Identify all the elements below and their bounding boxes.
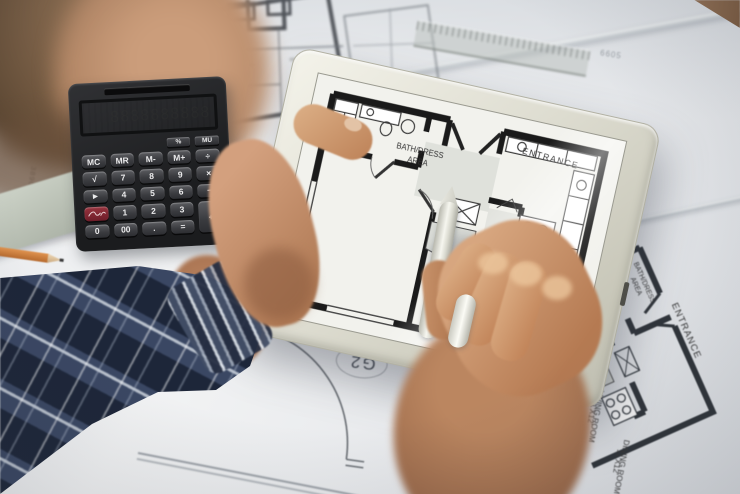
key-8[interactable]: 8 bbox=[139, 169, 163, 184]
left-hand-shadow bbox=[244, 248, 314, 320]
knuckle-highlight bbox=[510, 262, 542, 286]
key-5[interactable]: 5 bbox=[140, 186, 164, 201]
key-sqrt[interactable]: √ bbox=[82, 172, 106, 187]
calculator: 8888888888 % MU MC MR M- M+ ÷ √ 7 8 9 × … bbox=[68, 76, 235, 252]
key-percent[interactable]: % bbox=[166, 137, 190, 147]
knuckle-highlight bbox=[478, 252, 508, 274]
key-memory-plus[interactable]: M+ bbox=[167, 150, 191, 165]
pencil bbox=[0, 246, 50, 263]
key-memory-minus[interactable]: M- bbox=[139, 151, 163, 166]
calculator-display-segments: 8888888888 bbox=[110, 103, 211, 126]
key-memory-clear[interactable]: MC bbox=[81, 154, 105, 169]
key-7[interactable]: 7 bbox=[111, 170, 135, 185]
photo-scene: 6605 0630 3890 BATH/DRESS AREA ENTRANCE … bbox=[0, 0, 740, 494]
calculator-display: 8888888888 bbox=[79, 93, 219, 136]
key-00[interactable]: 00 bbox=[114, 222, 138, 237]
key-backspace[interactable]: ► bbox=[83, 189, 107, 204]
key-memory-recall[interactable]: MR bbox=[110, 153, 134, 168]
key-brand-logo[interactable] bbox=[84, 207, 108, 222]
calculator-solar-strip bbox=[104, 84, 190, 95]
cursive-logo-icon bbox=[86, 209, 106, 218]
key-3[interactable]: 3 bbox=[170, 202, 194, 217]
calculator-keypad: % MU MC MR M- M+ ÷ √ 7 8 9 × ► 4 5 6 − 1… bbox=[81, 135, 224, 238]
key-equals[interactable]: = bbox=[171, 219, 195, 234]
key-9[interactable]: 9 bbox=[168, 167, 192, 182]
key-4[interactable]: 4 bbox=[112, 188, 136, 203]
key-0[interactable]: 0 bbox=[85, 224, 109, 239]
key-1[interactable]: 1 bbox=[113, 205, 137, 220]
key-6[interactable]: 6 bbox=[169, 185, 193, 200]
key-markup[interactable]: MU bbox=[195, 135, 219, 145]
key-2[interactable]: 2 bbox=[141, 204, 165, 219]
pencil-lead bbox=[59, 258, 63, 262]
knuckle-highlight bbox=[542, 276, 572, 300]
key-decimal[interactable]: . bbox=[142, 221, 166, 236]
